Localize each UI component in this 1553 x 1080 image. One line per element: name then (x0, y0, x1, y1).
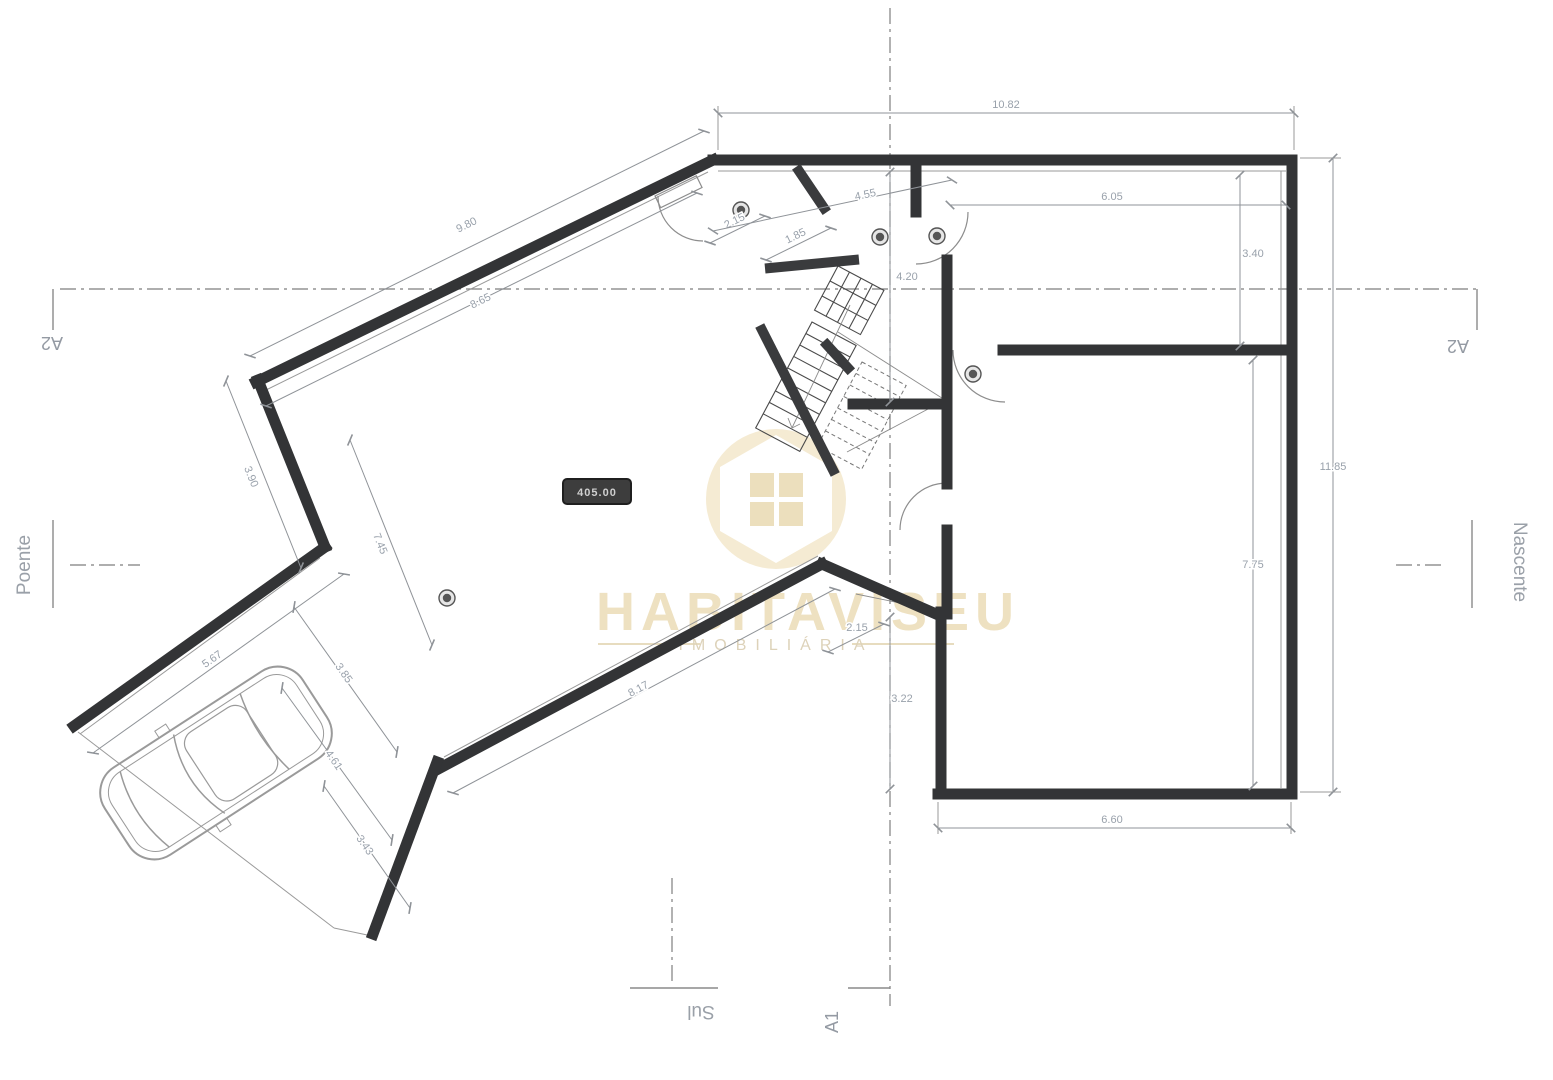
dimension-top-width: 10.82 (714, 99, 1298, 117)
dimension-label-right-total: 11.85 (1320, 461, 1347, 473)
car-top-view (84, 648, 347, 877)
dimension-label-south-offset: 3.22 (891, 693, 912, 705)
dimension-label-carport-a: 3.85 (332, 661, 354, 685)
watermark: HABITAVISEU IMOBILIÁRIA (596, 429, 1020, 654)
car-mirror-left (155, 724, 170, 738)
dimension-right-total: 11.85 (1320, 154, 1347, 796)
axis-a2-right-label: A2 (1447, 336, 1469, 356)
dimension-label-entry-c: 4.55 (854, 187, 877, 203)
wall-landing-north (770, 260, 854, 268)
stair-landing-grid (815, 266, 884, 335)
dimension-entry-b: 1.85 (760, 226, 836, 262)
dimension-label-upper-diagonal: 9.80 (454, 215, 479, 235)
wall-entry-stub (799, 171, 824, 208)
dimension-label-room-ne-height: 3.40 (1242, 248, 1263, 260)
dimension-label-entry-b: 1.85 (783, 226, 808, 246)
elevation-badge-value: 405.00 (577, 487, 617, 499)
compass-east-label: Nascente (1509, 522, 1530, 602)
dimension-bottom-width: 6.60 (934, 814, 1295, 832)
door-arc-entry (658, 196, 703, 241)
dimension-carport-a: 3.85 (293, 601, 398, 758)
fixture-marker (965, 366, 981, 382)
dimension-upper-diagonal: 9.80 (244, 129, 709, 358)
dimension-living-depth: 7.45 (348, 434, 435, 650)
stair-flight-lower-dashed (817, 362, 906, 469)
floor-plan-page: HABITAVISEU IMOBILIÁRIA A2 A2 Poente Nas… (0, 0, 1553, 1080)
dimension-label-living-depth: 7.45 (370, 532, 389, 556)
dimension-room-ne-width: 6.05 (946, 191, 1290, 209)
fixture-marker (872, 229, 888, 245)
dimension-label-room-e-height: 7.75 (1242, 559, 1263, 571)
dimension-label-bottom-width: 6.60 (1101, 814, 1122, 826)
dimension-label-carport-b: 4.61 (322, 748, 344, 772)
dimension-label-carport-top: 5.67 (200, 648, 224, 670)
dimension-label-south-wall: 8.17 (626, 679, 651, 700)
elevation-badge: 405.00 (563, 479, 631, 504)
floor-plan-svg: HABITAVISEU IMOBILIÁRIA A2 A2 Poente Nas… (0, 0, 1553, 1080)
dimension-label-hall-height: 4.20 (896, 271, 917, 283)
dimension-inner-diagonal: 8.65 (260, 191, 702, 408)
dimension-label-apex-offset: 2.15 (846, 622, 867, 634)
watermark-tagline: IMOBILIÁRIA (678, 635, 873, 654)
fixture-marker (439, 590, 455, 606)
dimension-entry-a: 2.15 (704, 211, 770, 245)
axis-a2-left-label: A2 (41, 333, 63, 353)
dimension-label-inner-diagonal: 8.65 (468, 291, 493, 311)
dimension-room-ne-height: 3.40 (1236, 171, 1264, 350)
fixture-marker (929, 228, 945, 244)
car-mirror-right (216, 818, 231, 832)
inner-face-lines (80, 171, 1286, 788)
compass-south-label: Sul (687, 1001, 714, 1022)
winder-fan-lines (838, 332, 945, 610)
dimension-label-room-ne-width: 6.05 (1101, 191, 1122, 203)
dimension-label-left-wall: 3.90 (241, 465, 260, 489)
door-arc-room-e (900, 483, 947, 530)
compass-west-label: Poente (14, 535, 35, 595)
dimension-carport-c: 3.43 (323, 780, 411, 914)
dimension-room-e-height: 7.75 (1242, 356, 1263, 790)
dimension-label-top-width: 10.82 (992, 99, 1020, 111)
watermark-brand: HABITAVISEU (596, 582, 1020, 642)
axis-a1-label: A1 (822, 1011, 842, 1033)
